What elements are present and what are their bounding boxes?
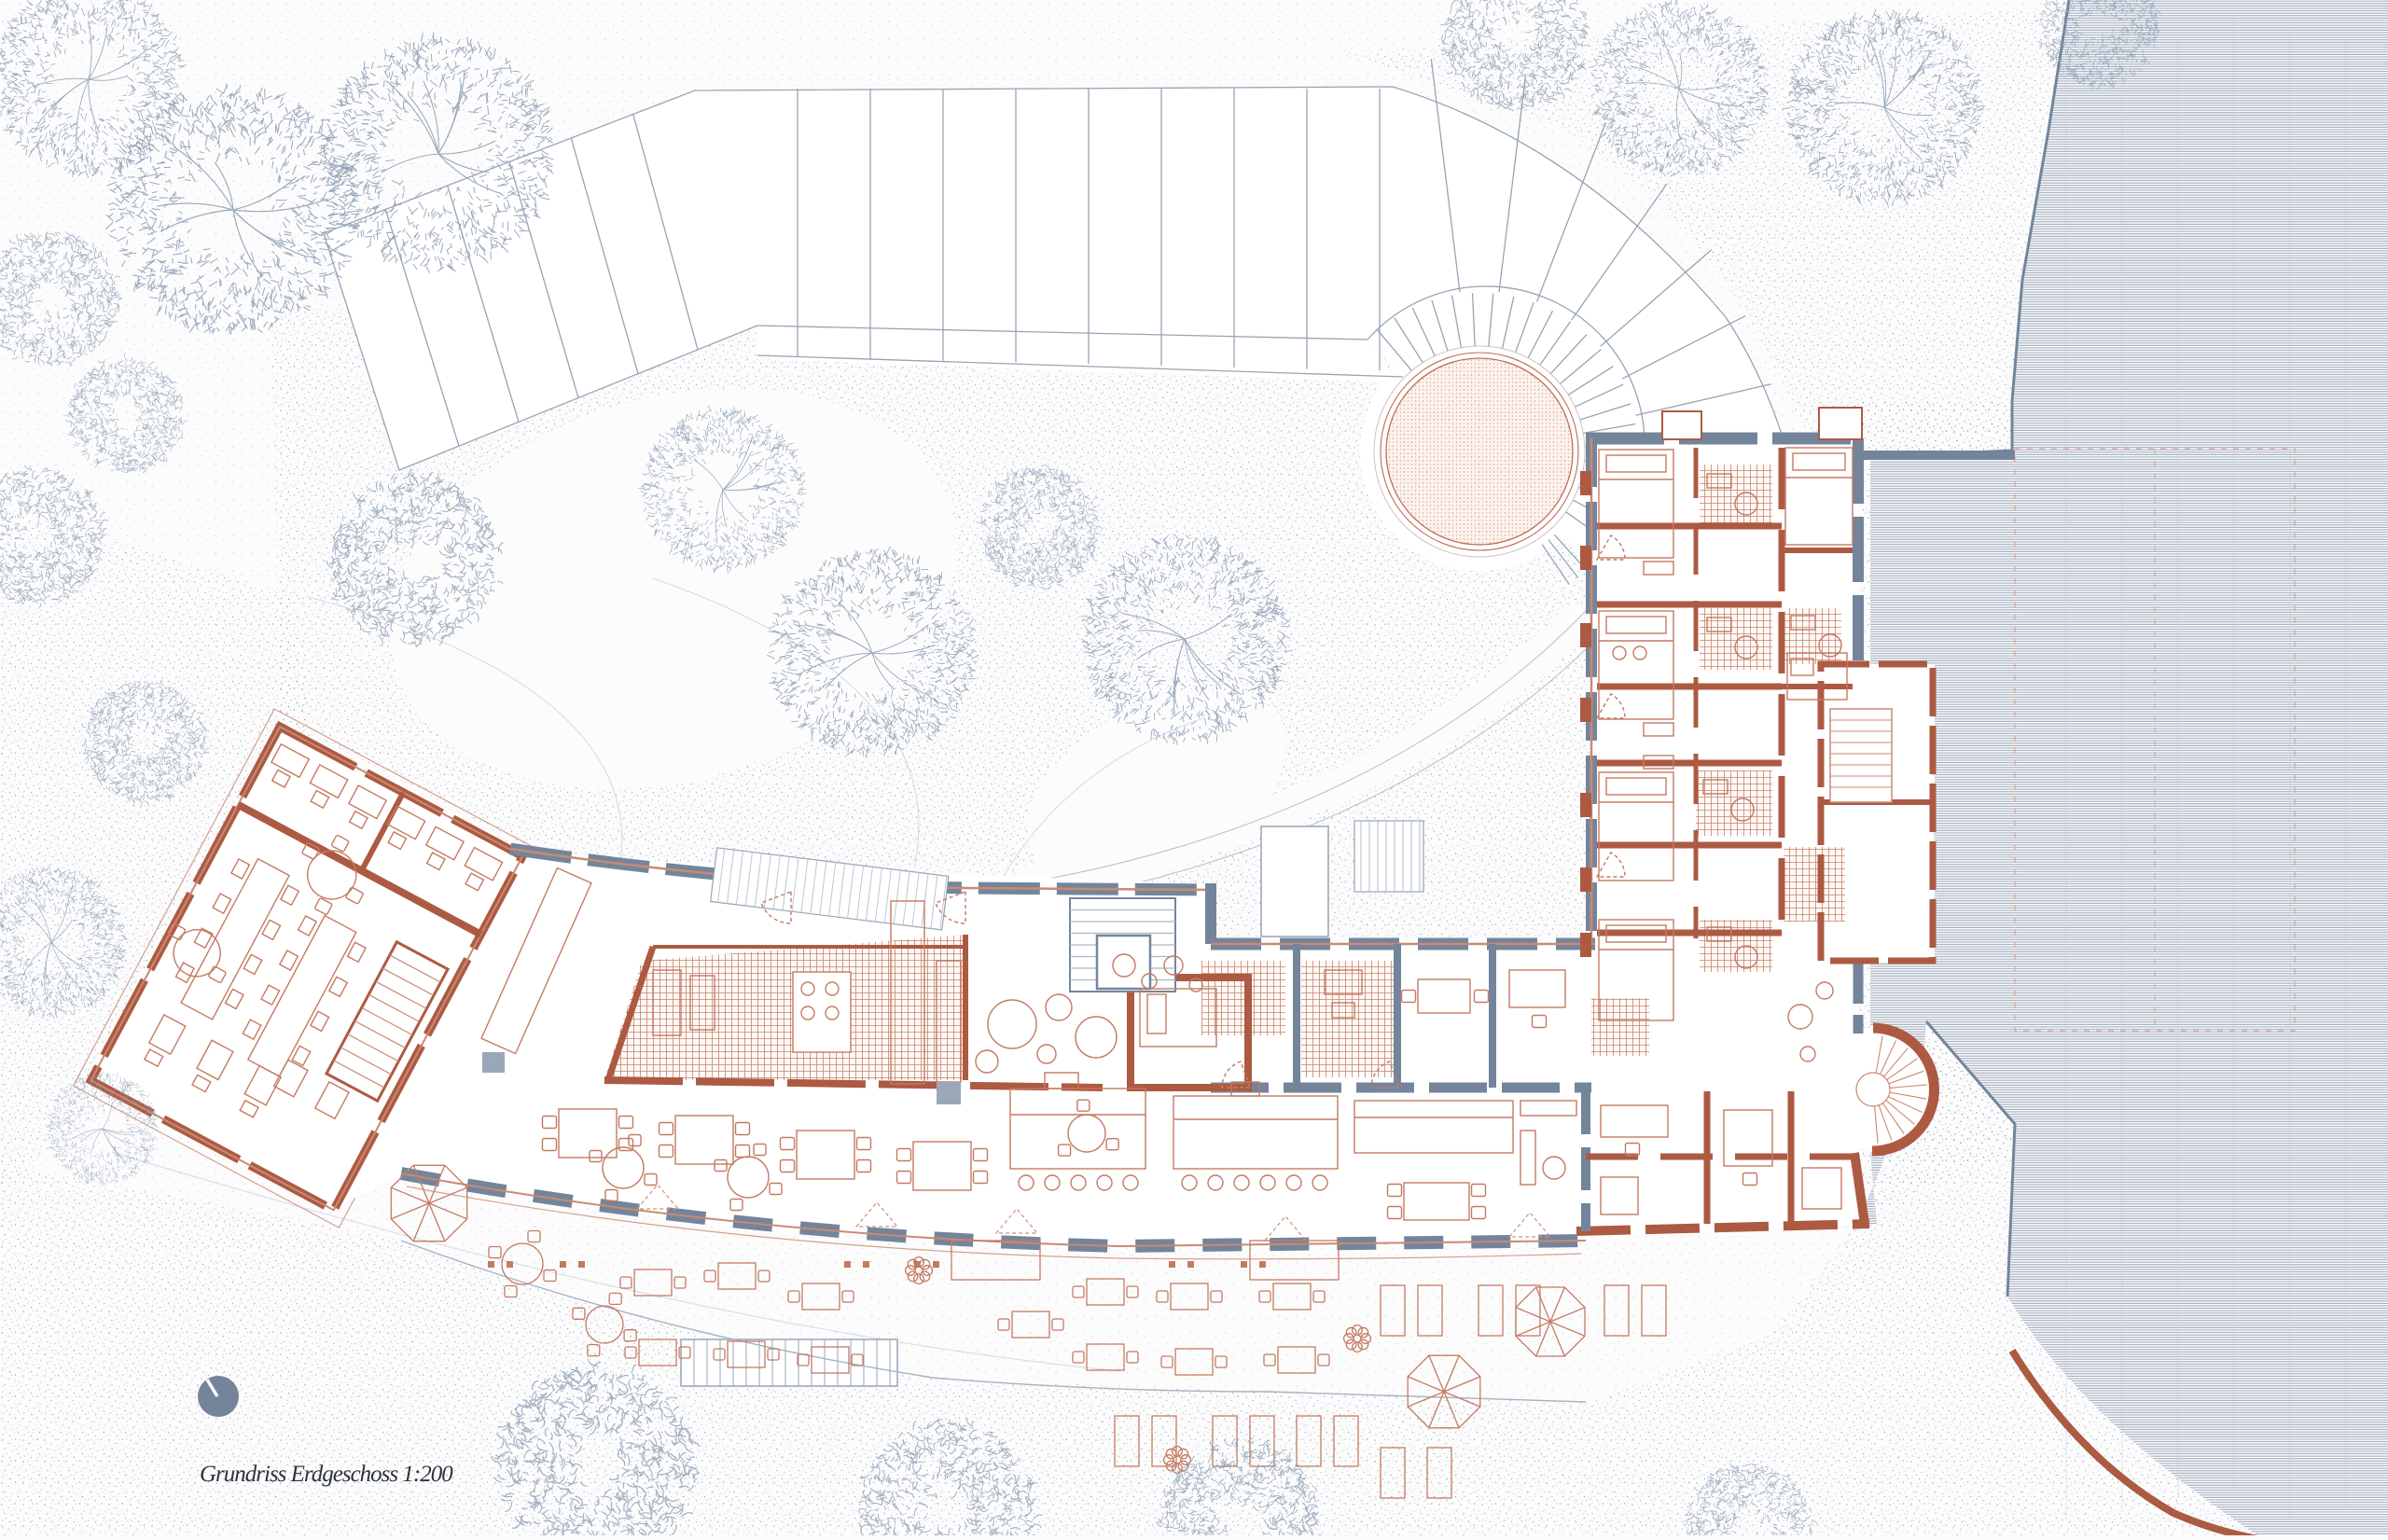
svg-text:Grundriss Erdgeschoss 1:200: Grundriss Erdgeschoss 1:200 [200,1462,453,1487]
